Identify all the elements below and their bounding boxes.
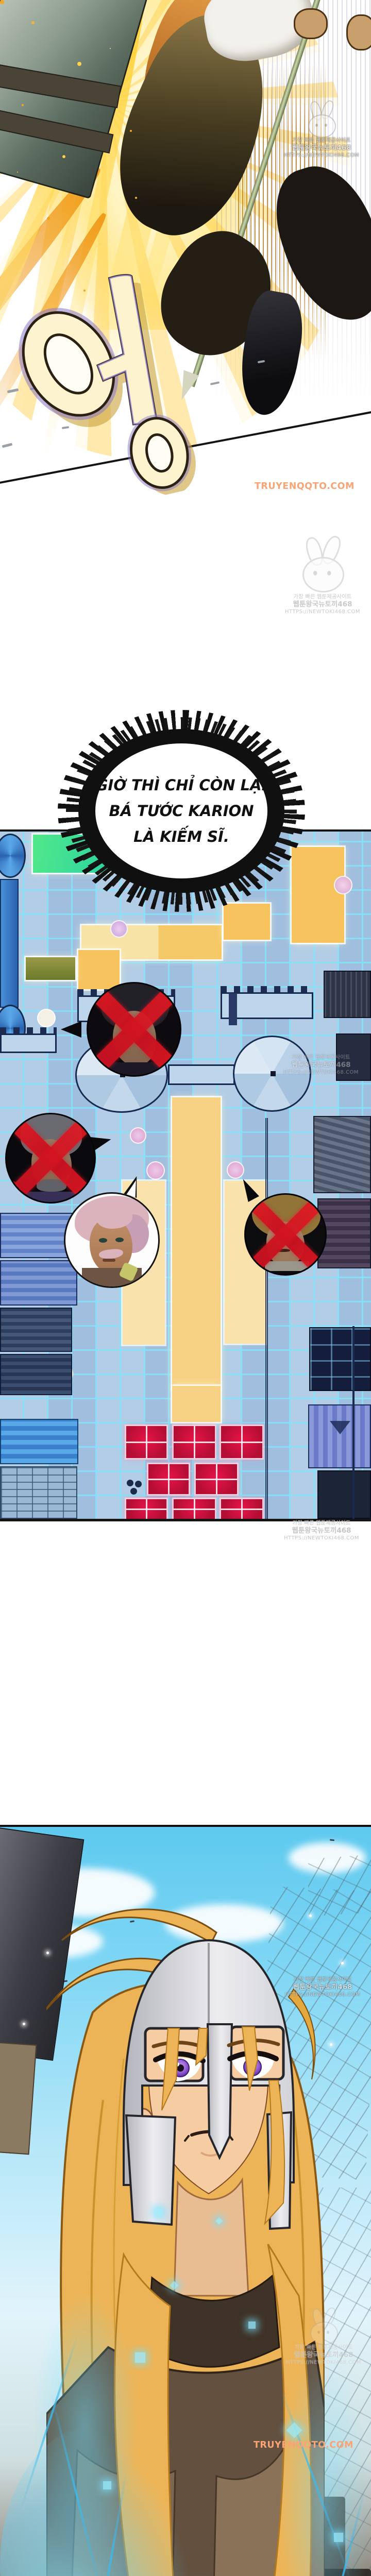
red-x-mark bbox=[244, 1193, 327, 1276]
map-portrait-karion bbox=[64, 1192, 160, 1288]
watermark-url: HTTPS://NEWTOKI468.COM bbox=[282, 152, 361, 159]
map-building-dark bbox=[324, 971, 371, 1018]
map-building-roof bbox=[0, 1354, 72, 1395]
gable-mark bbox=[330, 1421, 350, 1434]
rabbit-mascot-icon bbox=[298, 537, 347, 591]
sparkle bbox=[330, 2043, 332, 2046]
map-brick-courtyard bbox=[0, 1466, 77, 1519]
newtoki-watermark: 가장 빠른 웹툰제공사이트 웹툰왕국뉴토끼468 HTTPS://NEWTOKI… bbox=[283, 1054, 359, 1076]
watermark-site: 웹툰왕국뉴토끼468 bbox=[282, 144, 361, 152]
map-ship-hull bbox=[0, 879, 19, 1008]
map-target-red bbox=[126, 1499, 166, 1519]
map-zone-orange bbox=[224, 904, 270, 940]
map-dot-pink bbox=[227, 1161, 244, 1179]
map-portrait-blonde bbox=[244, 1193, 327, 1276]
map-path-main bbox=[172, 1097, 221, 1389]
map-target-red bbox=[196, 1464, 237, 1494]
bird-speck bbox=[330, 1839, 334, 1841]
aura-particle bbox=[248, 2321, 256, 2329]
sparkle bbox=[46, 1952, 49, 1954]
map-dot-pink bbox=[130, 1127, 146, 1144]
rabbit-mascot-icon bbox=[305, 101, 338, 137]
map-dot-white bbox=[37, 1009, 56, 1027]
rabbit-mascot-icon bbox=[307, 2308, 340, 2344]
fortress-wall bbox=[0, 1033, 57, 1053]
aura-particle bbox=[334, 2533, 343, 2542]
portrait-pointer bbox=[61, 1021, 81, 1038]
watermark-site: 웹툰왕국뉴토끼468 bbox=[282, 600, 363, 609]
map-zone-orange bbox=[292, 847, 344, 943]
map-tower bbox=[0, 834, 26, 878]
newtoki-watermark: 가장 빠른 웹툰제공사이트 웹툰왕국뉴토끼468 HTTPS://NEWTOKI… bbox=[280, 1520, 363, 1542]
map-building-roof bbox=[0, 1308, 72, 1352]
attacker-fist bbox=[294, 8, 328, 39]
map-target-red bbox=[221, 1426, 262, 1458]
map-path-main bbox=[172, 1386, 221, 1422]
tan-block bbox=[0, 2042, 37, 2155]
panel-knight-closeup bbox=[0, 1825, 371, 2576]
attacker-fist bbox=[346, 14, 371, 50]
watermark-url: HTTPS://NEWTOKI468.COM bbox=[282, 609, 363, 616]
truyenqq-watermark: TRUYENQQTO.COM bbox=[254, 2440, 353, 2450]
map-target-red bbox=[221, 1499, 262, 1519]
red-x-mark bbox=[5, 1113, 96, 1204]
newtoki-watermark: 가장 빠른 웹툰제공사이트 웹툰왕국뉴토끼468 HTTPS://NEWTOKI… bbox=[282, 101, 361, 159]
sparkle bbox=[341, 1962, 344, 1964]
fortress-gate-post bbox=[229, 993, 237, 1025]
map-target-red bbox=[174, 1499, 215, 1519]
map-barrels bbox=[127, 1480, 133, 1486]
sparkle bbox=[309, 1914, 312, 1917]
map-building-windows bbox=[309, 1327, 371, 1391]
map-building-gable bbox=[308, 1404, 371, 1468]
newtoki-watermark: 가장 빠른 웹툰제공사이트 웹툰왕국뉴토끼468 HTTPS://NEWTOKI… bbox=[284, 2308, 363, 2366]
map-portrait-commander bbox=[87, 982, 181, 1077]
webtoon-page: 엉 가장 빠른 웹툰제공사이트 웹툰왕국뉴토끼468 bbox=[0, 0, 371, 2576]
sparkle bbox=[23, 2023, 25, 2025]
panel-tactical-map: 가장 빠른 웹툰제공사이트 웹툰왕국뉴토끼468 HTTPS://NEWTOKI… bbox=[0, 829, 371, 1521]
map-building-roof bbox=[0, 1260, 77, 1306]
newtoki-watermark: 가장 빠른 웹툰제공사이트 웹툰왕국뉴토끼468 HTTPS://NEWTOKI… bbox=[283, 1976, 362, 1998]
aura-particle bbox=[155, 2208, 163, 2216]
map-dot-pink bbox=[146, 1161, 165, 1180]
map-target-red bbox=[174, 1426, 215, 1458]
map-dot-pink bbox=[334, 876, 352, 894]
aura-particle bbox=[103, 2481, 111, 2489]
map-building-roof bbox=[313, 1116, 371, 1193]
map-dot-lavender bbox=[110, 920, 128, 938]
map-portrait-grey-noble bbox=[5, 1113, 96, 1204]
red-x-mark bbox=[87, 982, 181, 1077]
aura-particle bbox=[135, 2352, 145, 2363]
watermark-tagline: 가장 빠른 웹툰제공사이트 bbox=[282, 594, 363, 600]
map-building-roof bbox=[0, 1419, 78, 1464]
map-zone-olive bbox=[26, 957, 75, 980]
map-target-red bbox=[148, 1464, 189, 1494]
map-target-red bbox=[126, 1426, 166, 1458]
truyenqq-watermark: TRUYENQQTO.COM bbox=[255, 481, 355, 492]
newtoki-watermark: 가장 빠른 웹툰제공사이트 웹툰왕국뉴토끼468 HTTPS://NEWTOKI… bbox=[282, 537, 363, 616]
map-road-line bbox=[265, 1118, 268, 1519]
map-road-line bbox=[352, 1326, 355, 1519]
spark-dots bbox=[0, 0, 4, 4]
bubble-text: GIỜ THÌ CHỈ CÒN LẠI BÁ TƯỚC KARION LÀ KI… bbox=[83, 746, 279, 876]
map-building-dark bbox=[317, 1470, 371, 1519]
